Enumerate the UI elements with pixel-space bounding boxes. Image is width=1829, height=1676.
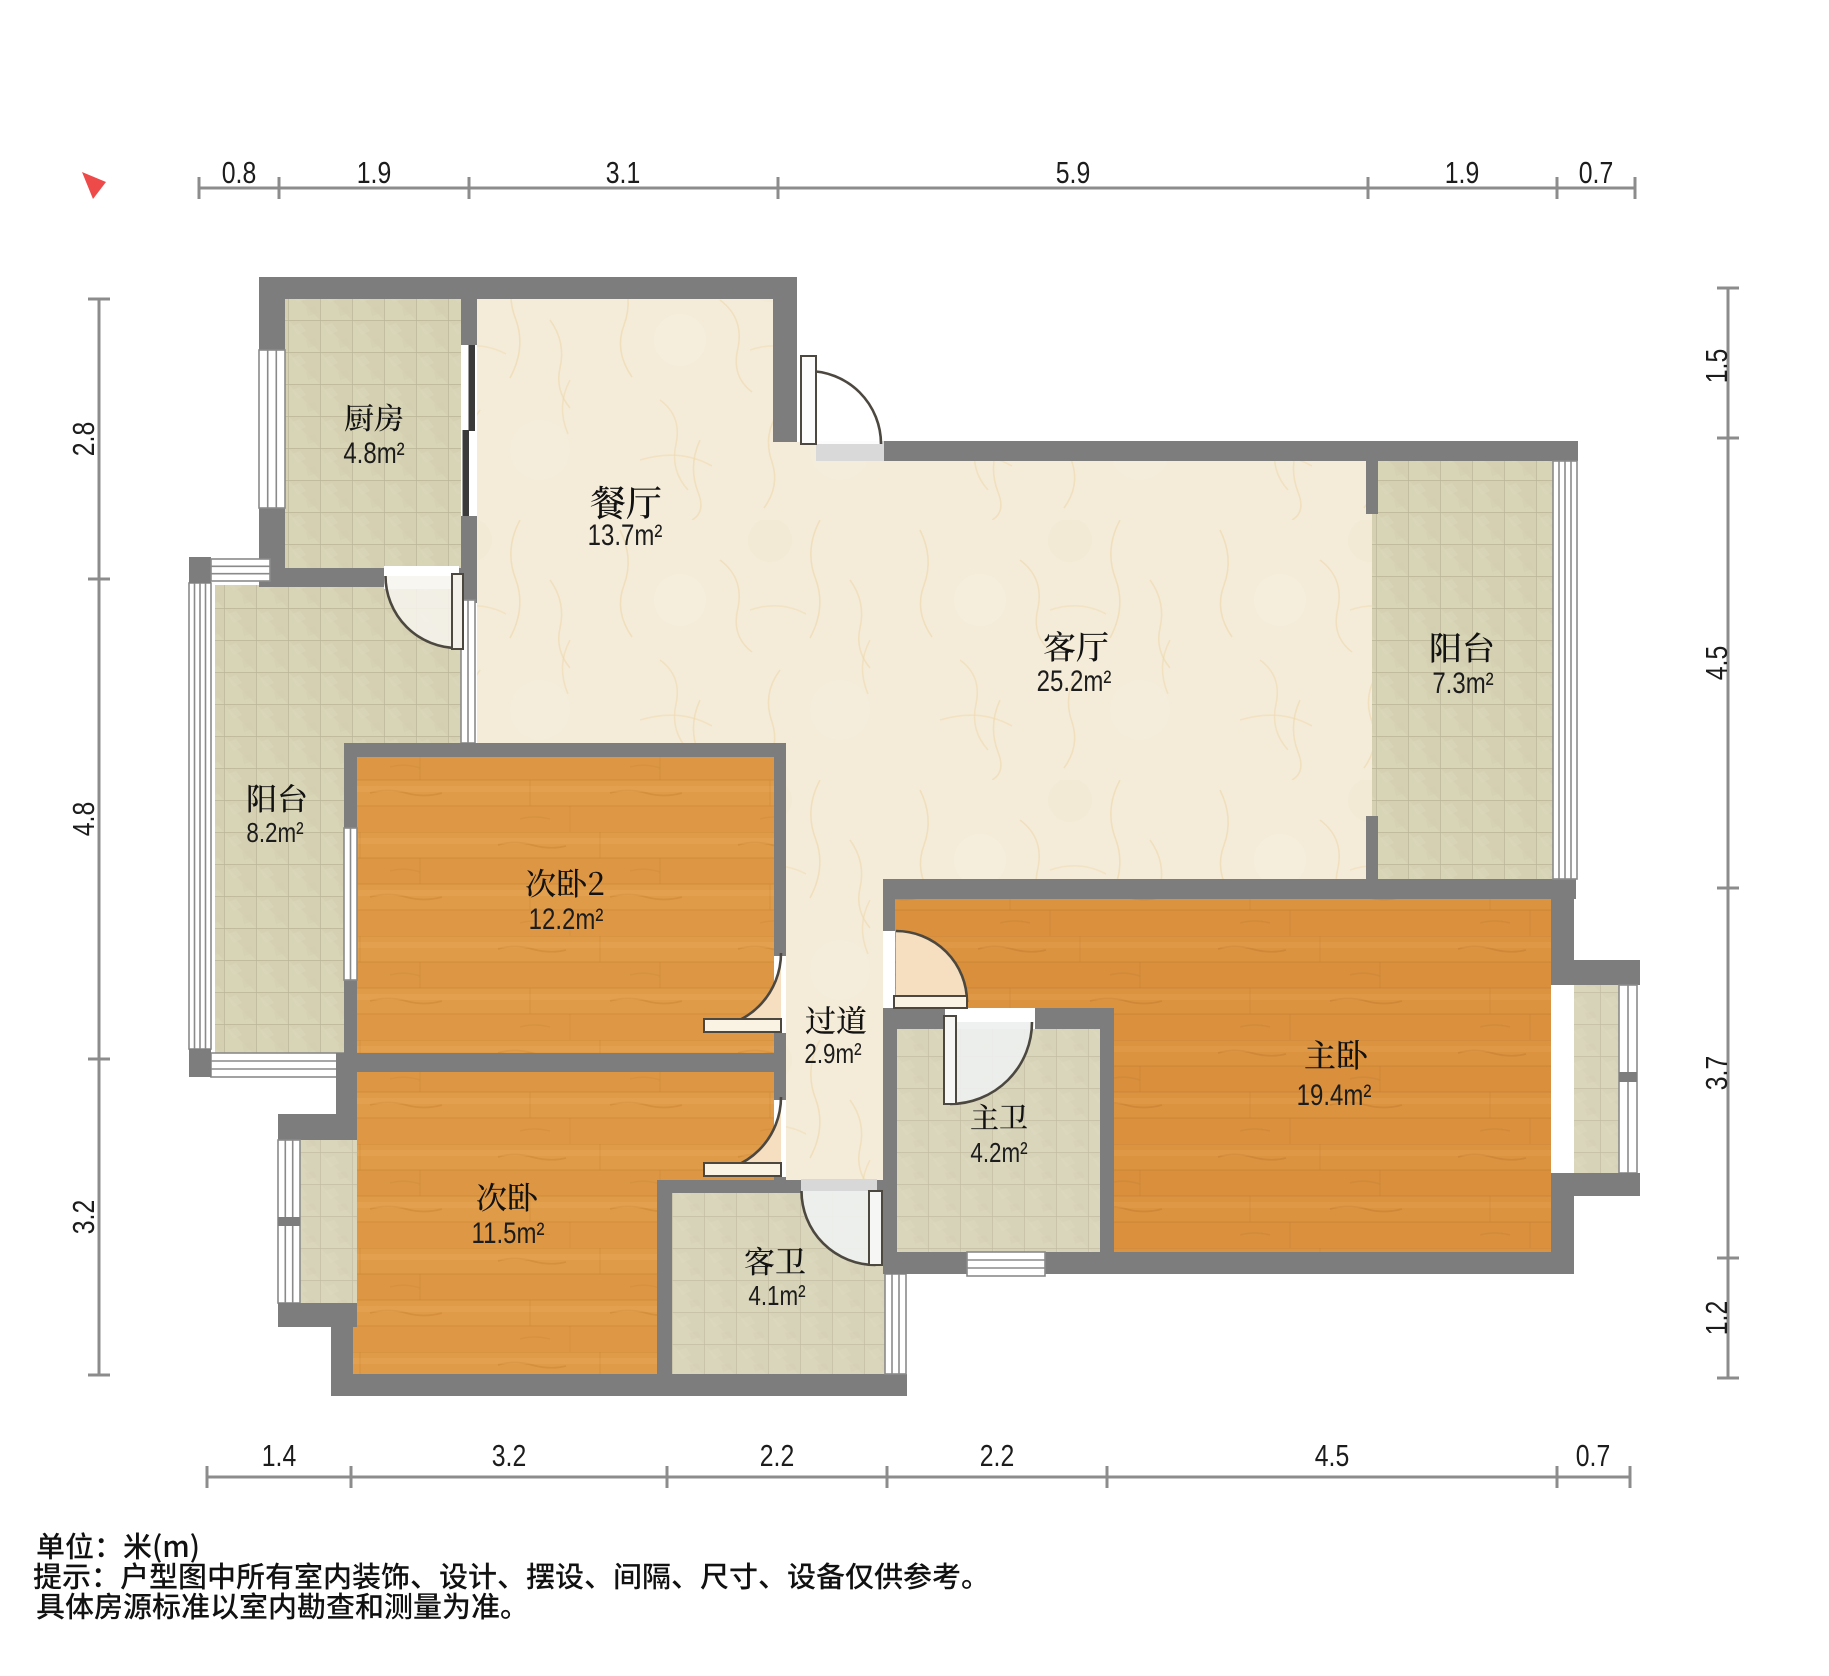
svg-text:5.9: 5.9 (1056, 155, 1090, 189)
svg-text:4.2m²: 4.2m² (970, 1138, 1027, 1169)
svg-text:4.8m²: 4.8m² (343, 435, 404, 469)
svg-text:7.3m²: 7.3m² (1432, 665, 1493, 699)
svg-text:1.2: 1.2 (1699, 1301, 1733, 1335)
svg-text:1.5: 1.5 (1699, 349, 1733, 383)
svg-text:8.2m²: 8.2m² (246, 818, 303, 849)
svg-text:4.8: 4.8 (66, 802, 100, 836)
svg-text:3.2: 3.2 (492, 1438, 526, 1472)
svg-text:2.2: 2.2 (760, 1438, 794, 1472)
svg-text:2.2: 2.2 (980, 1438, 1014, 1472)
svg-text:0.8: 0.8 (222, 155, 256, 189)
svg-text:0.7: 0.7 (1579, 155, 1613, 189)
svg-text:19.4m²: 19.4m² (1297, 1077, 1372, 1111)
svg-text:1.9: 1.9 (1445, 155, 1479, 189)
svg-text:25.2m²: 25.2m² (1037, 663, 1112, 697)
svg-text:3.7: 3.7 (1699, 1056, 1733, 1090)
svg-text:2.9m²: 2.9m² (804, 1039, 861, 1070)
svg-text:11.5m²: 11.5m² (472, 1215, 545, 1249)
svg-text:4.1m²: 4.1m² (748, 1281, 805, 1312)
svg-text:12.2m²: 12.2m² (529, 901, 604, 935)
svg-text:3.1: 3.1 (606, 155, 640, 189)
svg-text:13.7m²: 13.7m² (588, 517, 663, 551)
svg-text:0.7: 0.7 (1576, 1438, 1610, 1472)
svg-text:2.8: 2.8 (66, 422, 100, 456)
svg-text:4.5: 4.5 (1315, 1438, 1349, 1472)
svg-text:3.2: 3.2 (66, 1200, 100, 1234)
svg-text:4.5: 4.5 (1699, 646, 1733, 680)
svg-text:1.4: 1.4 (262, 1438, 296, 1472)
svg-text:1.9: 1.9 (357, 155, 391, 189)
